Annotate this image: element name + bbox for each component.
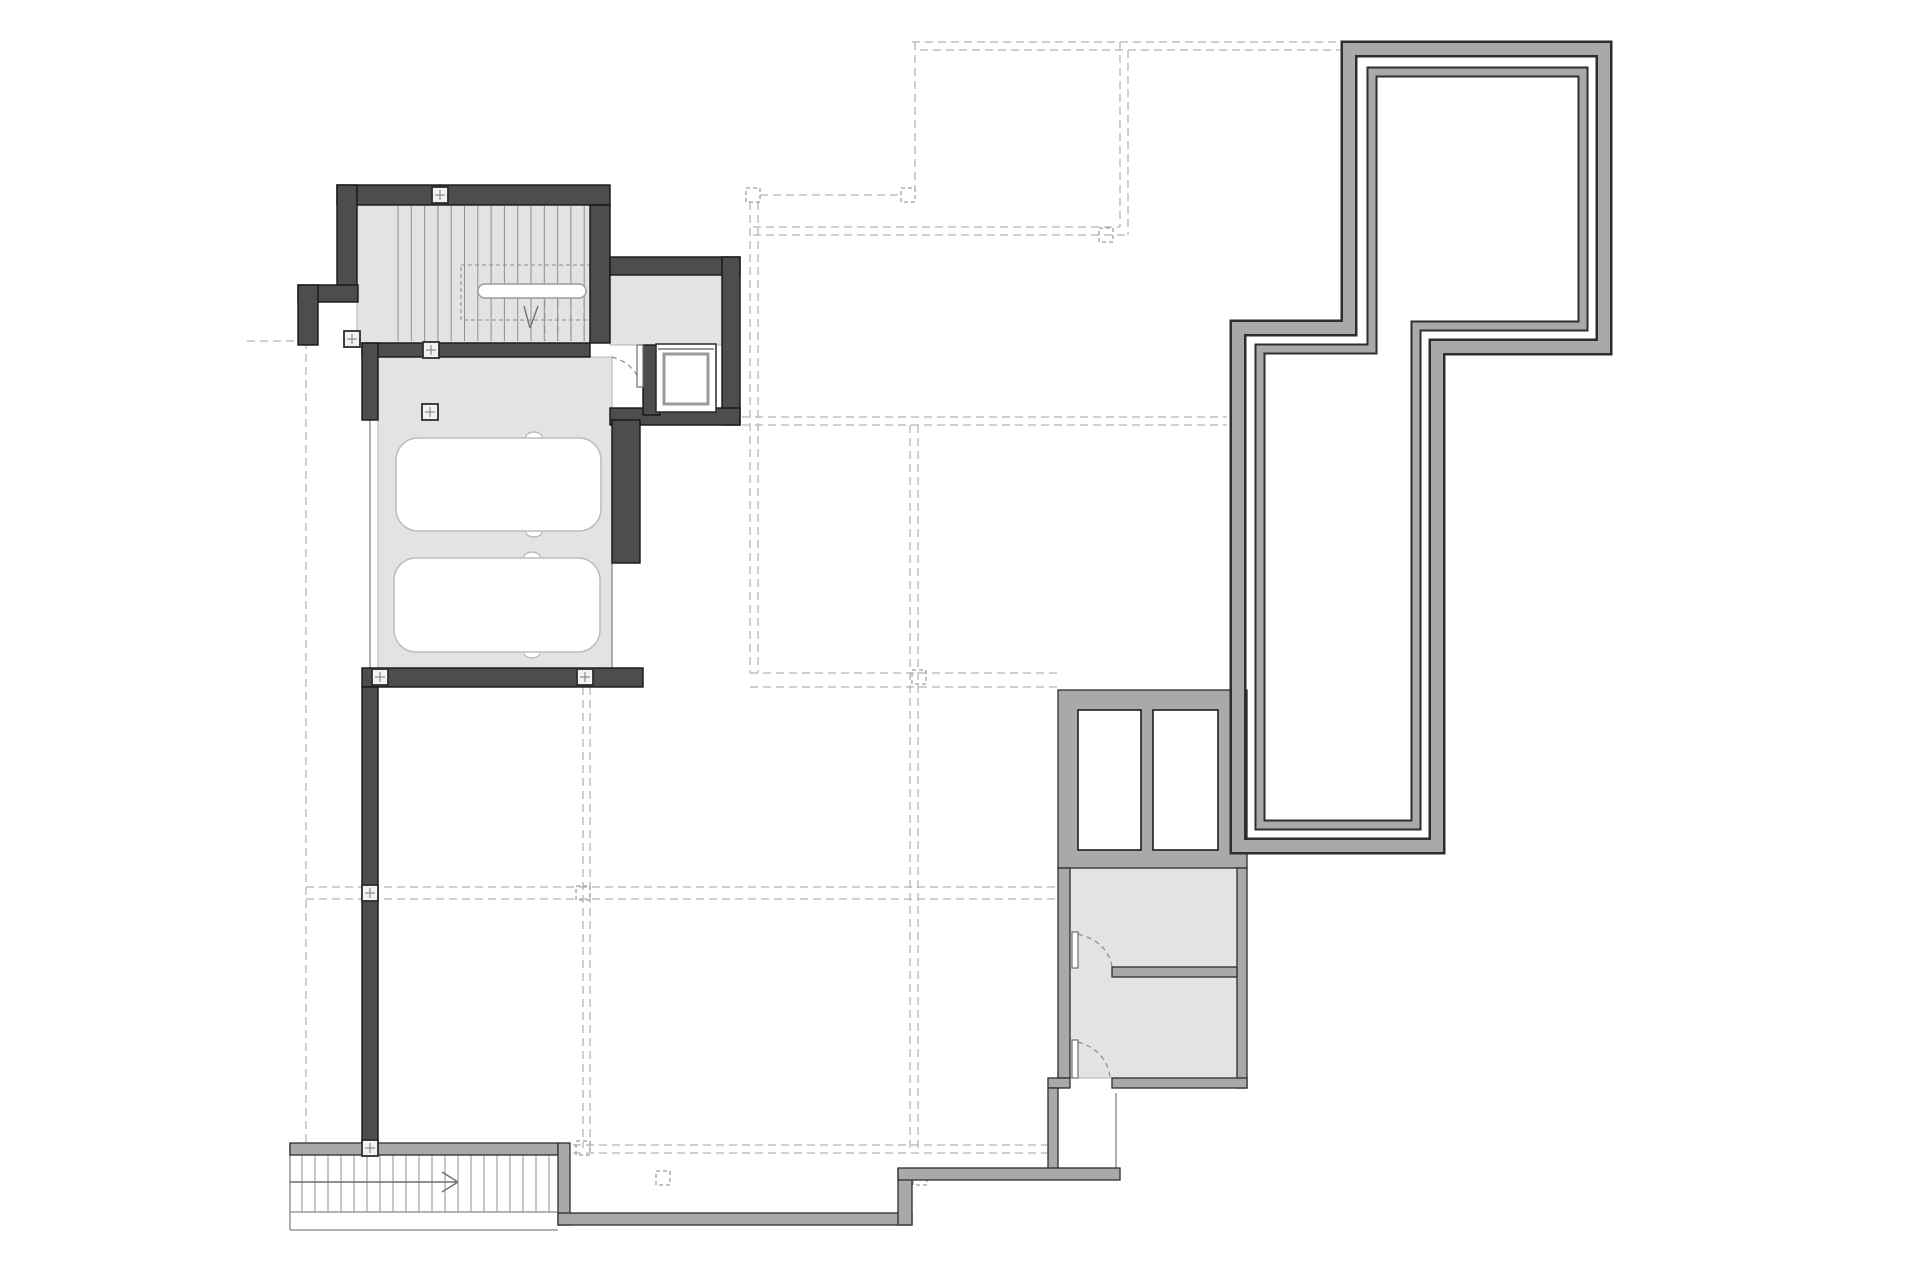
door-leaf (1072, 1040, 1078, 1078)
wall-gray (1112, 967, 1237, 977)
car-outline (396, 438, 601, 531)
wall-gray (290, 1143, 558, 1155)
wall-gray (1048, 1078, 1070, 1088)
wall-dark (610, 257, 740, 275)
floor-plan-svg (0, 0, 1920, 1280)
wall-dark (362, 668, 643, 687)
wall-gray (1058, 868, 1070, 1078)
wall-dark (362, 687, 378, 1155)
wall-dark (722, 257, 740, 425)
window-cell (1153, 710, 1218, 850)
floor-plan-canvas (0, 0, 1920, 1280)
wall-gray (1237, 868, 1247, 1088)
wall-dark (362, 343, 590, 357)
elevator (656, 344, 716, 412)
stair-handrail (478, 284, 586, 298)
wall-dark (362, 343, 378, 420)
wall-dark (298, 285, 318, 345)
wall-gray (1112, 1078, 1247, 1088)
wall-gray (558, 1213, 912, 1225)
wall-dark (337, 185, 357, 293)
wall-gray (1048, 1088, 1058, 1175)
wall-dark (590, 205, 610, 343)
floor-area (610, 275, 722, 345)
car-outline (394, 558, 600, 652)
wall-gray (898, 1168, 1120, 1180)
door-leaf (1072, 932, 1078, 968)
elevator-car (664, 354, 708, 404)
door-leaf (637, 345, 643, 387)
floor-area (357, 205, 590, 343)
wall-dark (337, 185, 610, 205)
plan-background (0, 0, 1920, 1280)
wall-dark (612, 420, 640, 563)
window-cell (1078, 710, 1141, 850)
